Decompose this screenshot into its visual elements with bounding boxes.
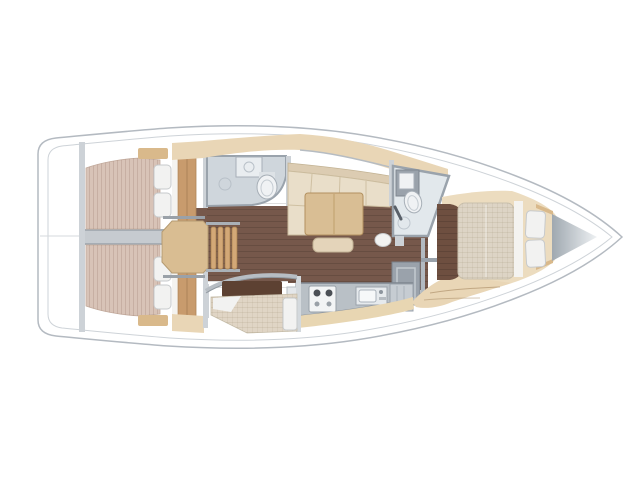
stern-bulkhead	[79, 142, 85, 332]
yacht-floorplan-canvas	[0, 0, 640, 480]
sink-aft	[236, 157, 262, 177]
step	[218, 227, 223, 269]
companionway-rail-bottom	[206, 269, 240, 272]
step	[232, 227, 237, 269]
faucet-galley	[379, 290, 383, 294]
shelf-starboard	[138, 315, 168, 326]
toilet-aft	[257, 175, 277, 199]
bed-mattress-starboard-texture	[86, 245, 160, 316]
forward-cabin-door-handle	[421, 258, 437, 262]
pillow	[283, 298, 297, 330]
island-bed-headboard	[514, 201, 523, 277]
forward-head-wall-stub	[395, 236, 404, 246]
yacht-floorplan	[0, 0, 640, 480]
locker-starboard	[172, 314, 204, 333]
shelf-port	[138, 148, 168, 159]
stove	[309, 286, 336, 312]
burner	[315, 302, 320, 307]
pillow	[154, 165, 171, 189]
companionway-platform	[162, 221, 208, 273]
pillow	[525, 211, 545, 239]
salon-stool	[313, 238, 353, 252]
companionway-jamb-top	[163, 216, 205, 219]
step	[211, 227, 216, 269]
locker-port	[172, 141, 204, 160]
companionway-rail-top	[206, 222, 240, 225]
bed-mattress-port-texture	[86, 158, 160, 229]
burner	[326, 290, 333, 297]
burner	[327, 302, 332, 307]
bed-headboard-port	[172, 160, 177, 230]
faucet-handle	[379, 297, 386, 300]
pillow	[154, 285, 171, 309]
companionway-jamb-bottom	[163, 275, 205, 278]
burner	[314, 290, 321, 297]
step	[225, 227, 230, 269]
sink-forward	[399, 173, 414, 189]
pillow	[525, 239, 545, 267]
pillow	[154, 193, 171, 217]
pouf	[375, 234, 391, 247]
sink-galley-basin	[359, 290, 376, 302]
